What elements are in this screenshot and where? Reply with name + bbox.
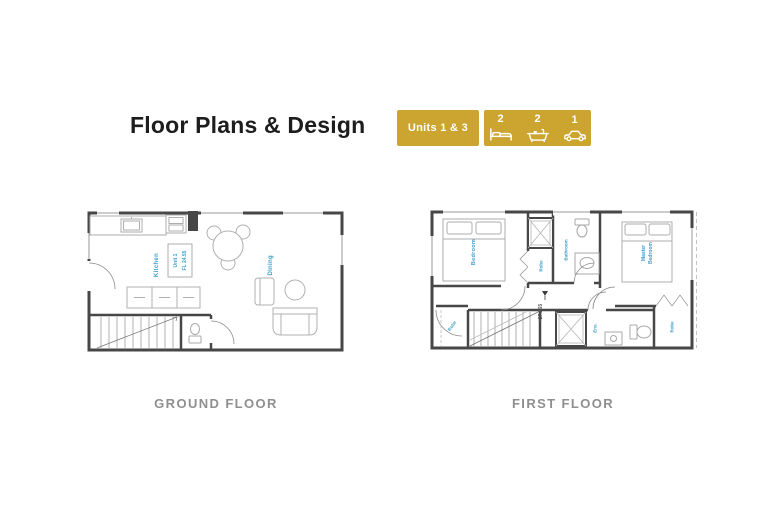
master-bedroom-label-line1: Master <box>641 245 647 261</box>
bed-icon <box>489 127 513 142</box>
features-badge: 2 2 1 <box>484 110 591 146</box>
feature-bathrooms: 2 <box>526 114 550 142</box>
unit-level-label: FL 24.55 <box>182 250 188 270</box>
wc-toilet <box>189 321 234 344</box>
level-marker: +27.265 <box>538 291 548 322</box>
feature-garages: 1 <box>563 115 587 142</box>
ground-floor-plan: Unit 1 FL 24.55 Kitchen Lounge / Dining <box>85 203 347 355</box>
feature-bedrooms: 2 <box>489 114 513 142</box>
robe-top-label: Robe <box>539 260 544 272</box>
bedroom-count: 2 <box>497 114 503 125</box>
robe-right: Robe <box>656 295 688 333</box>
unit-number-label: Unit 1 <box>173 253 179 267</box>
page-title: Floor Plans & Design <box>130 112 365 139</box>
lounge-furniture <box>255 278 317 335</box>
robe-top: Robe <box>520 251 544 283</box>
robe-right-label: Robe <box>670 321 675 333</box>
dining-table <box>207 225 250 270</box>
garage-count: 1 <box>571 115 577 126</box>
kitchen-counter <box>90 215 186 235</box>
stairs <box>97 317 177 348</box>
shower-top <box>528 218 553 248</box>
ground-floor-caption: GROUND FLOOR <box>85 396 347 411</box>
entry-door-arc <box>89 263 115 289</box>
bedroom-label: Bedroom <box>471 239 477 265</box>
floor-plans-section: Floor Plans & Design Units 1 & 3 2 2 <box>0 0 768 512</box>
units-tab[interactable]: Units 1 & 3 <box>397 110 479 146</box>
level-label: +27.265 <box>538 304 544 322</box>
first-stairs <box>470 312 538 346</box>
master-bed <box>622 222 672 282</box>
car-icon <box>563 128 587 142</box>
master-bedroom-label-line2: Bedroom <box>648 241 654 264</box>
ensuite-label: Ens. <box>593 323 598 333</box>
bathroom-fixtures <box>574 219 599 283</box>
bathroom-label: Bathroom <box>564 239 569 260</box>
units-tab-label: Units 1 & 3 <box>408 122 468 134</box>
unit-info-box: Unit 1 FL 24.55 <box>168 244 192 277</box>
bath-icon <box>526 127 550 142</box>
first-floor-plan: Bedroom Robe Bathroom Master Be <box>428 206 698 354</box>
island-bench <box>127 287 200 308</box>
robe-left-label: Robe <box>447 320 458 332</box>
kitchen-label: Kitchen <box>154 253 160 277</box>
bathroom-count: 2 <box>534 114 540 125</box>
first-floor-caption: FIRST FLOOR <box>428 396 698 411</box>
ensuite: Ens. <box>556 312 651 346</box>
